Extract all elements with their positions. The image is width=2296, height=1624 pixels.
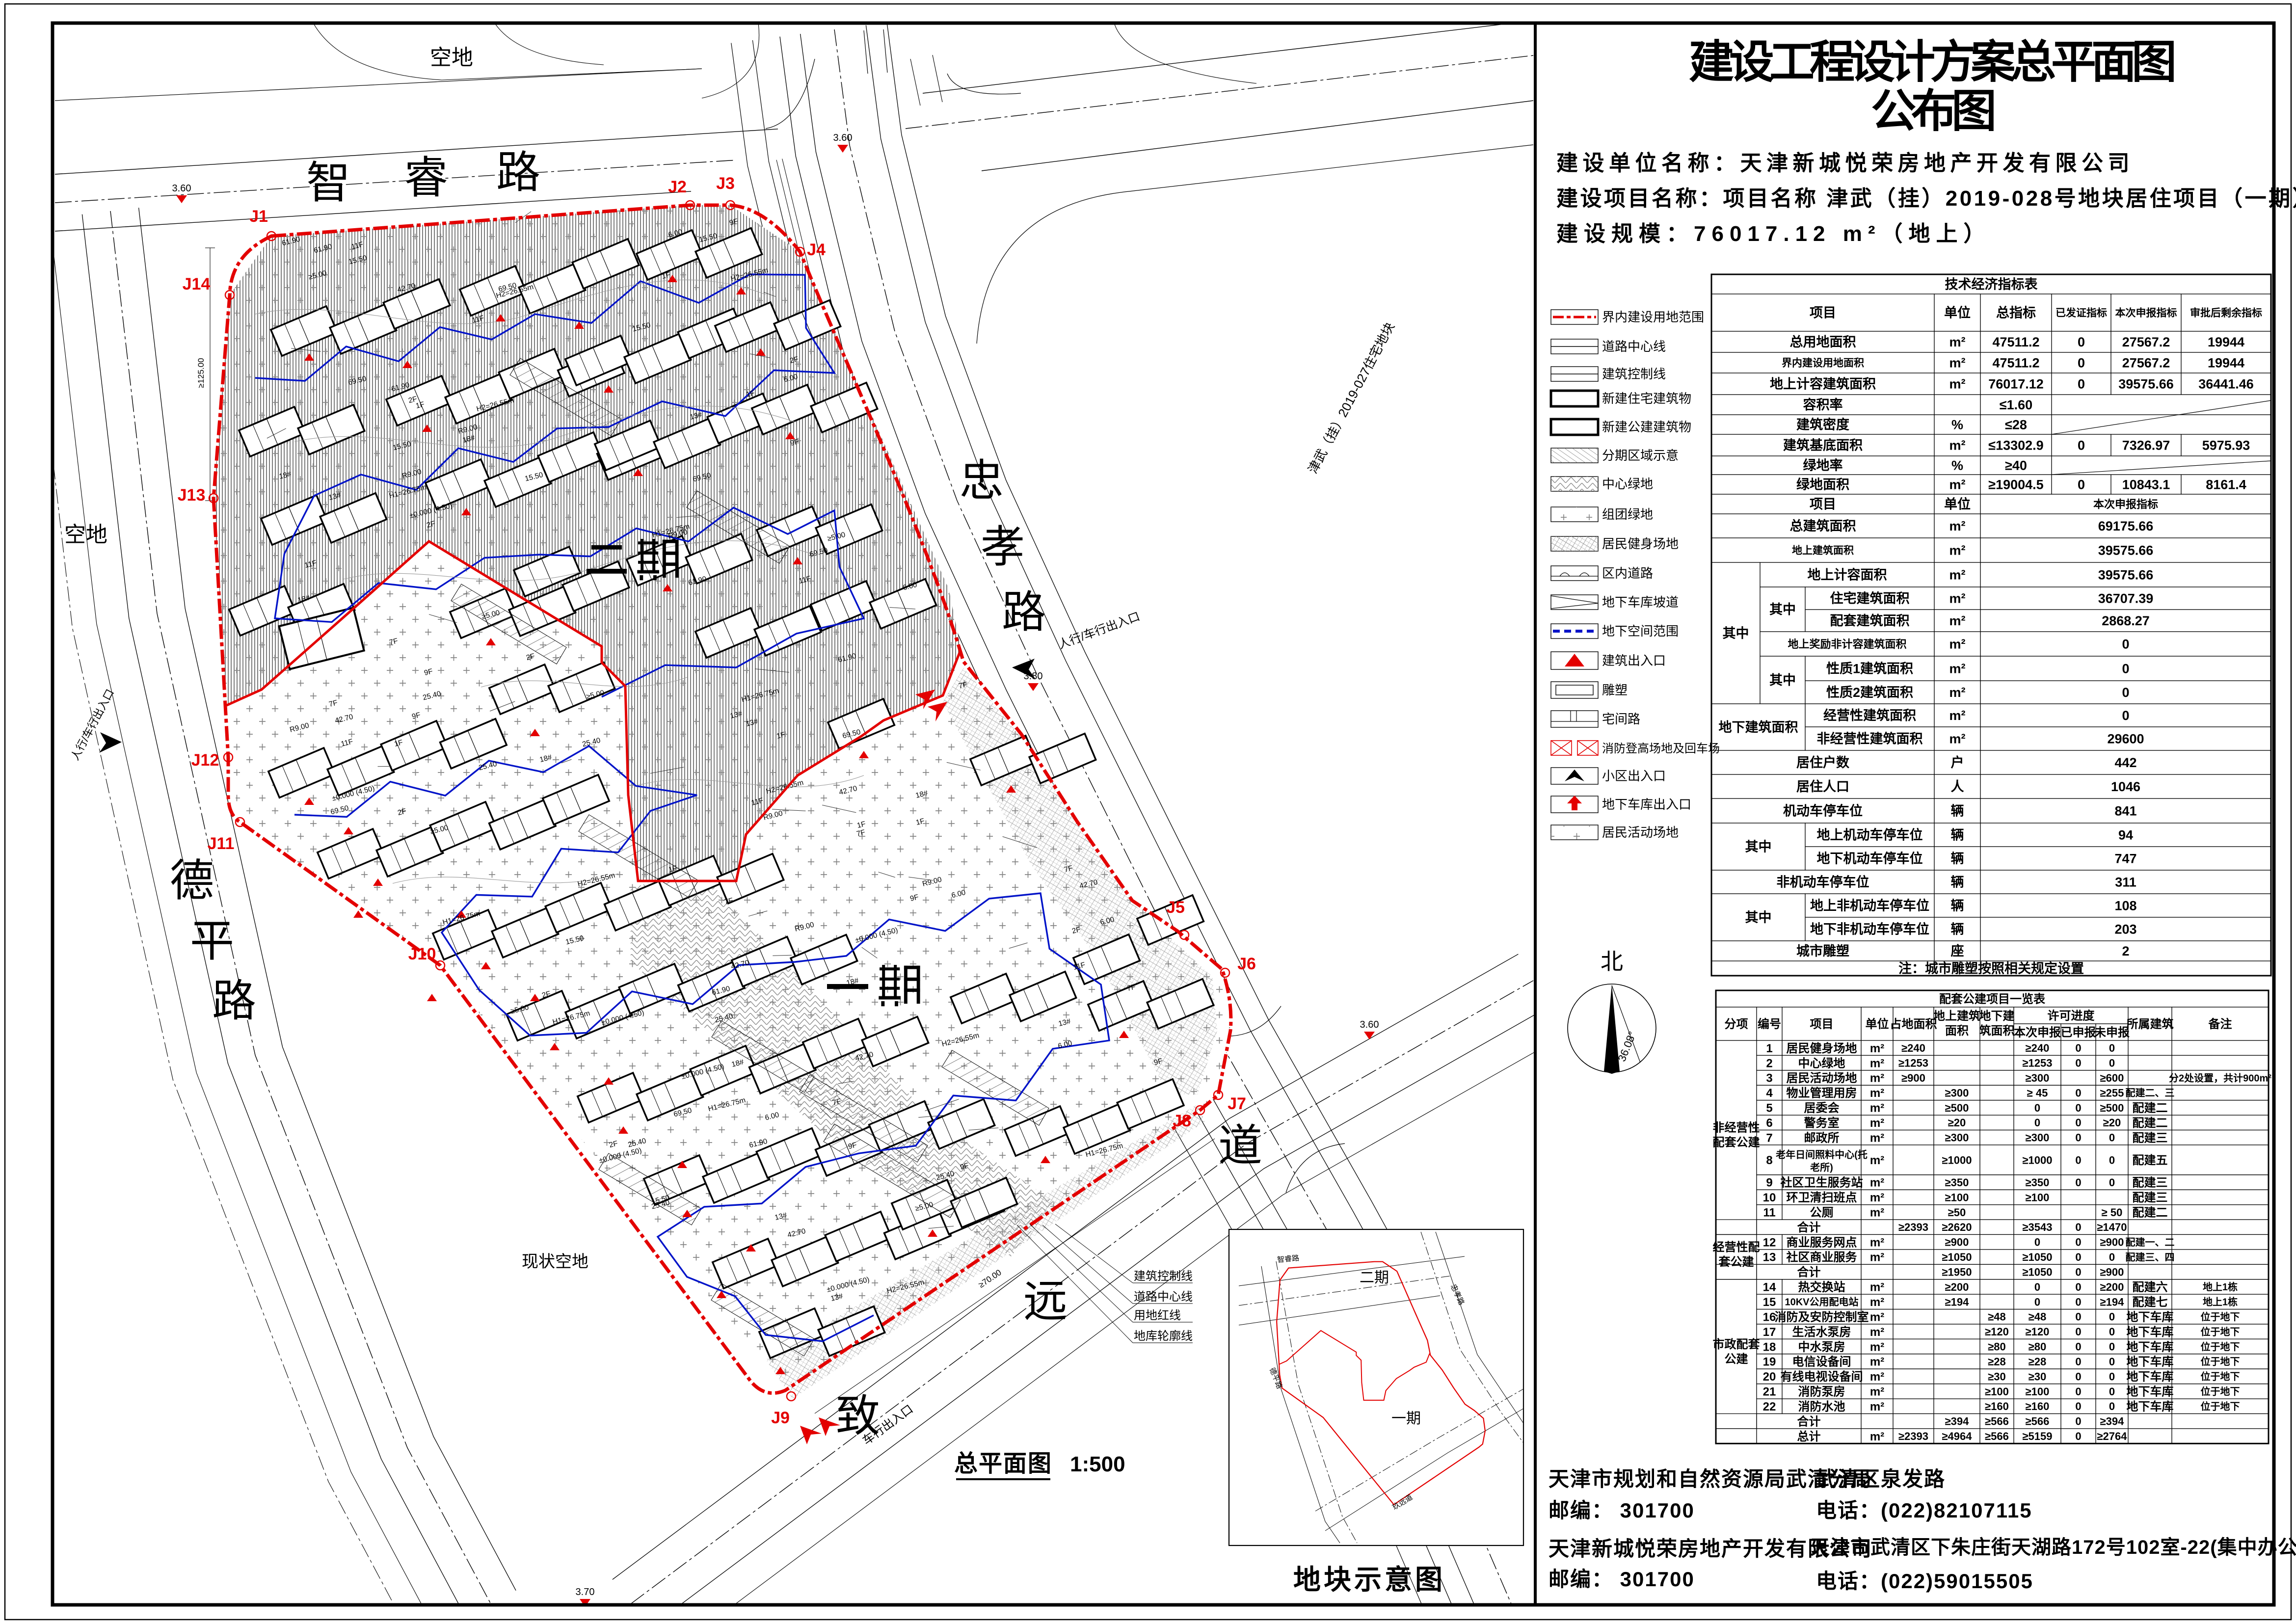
svg-text:地上建筑: 地上建筑: [1933, 1009, 1980, 1023]
svg-text:总指标: 总指标: [1996, 306, 2036, 320]
svg-text:≤28: ≤28: [2005, 418, 2027, 432]
svg-text:≥4964: ≥4964: [1942, 1430, 1972, 1442]
svg-text:≥500: ≥500: [1945, 1102, 1969, 1114]
svg-text:m²: m²: [1870, 1131, 1884, 1145]
svg-text:0: 0: [2109, 1042, 2115, 1054]
svg-text:项目: 项目: [1810, 497, 1836, 512]
svg-text:m²: m²: [1949, 708, 1966, 723]
svg-text:7326.97: 7326.97: [2122, 438, 2170, 453]
svg-text:≥350: ≥350: [2026, 1176, 2050, 1189]
svg-text:≥19004.5: ≥19004.5: [1988, 478, 2043, 492]
svg-text:0: 0: [2078, 335, 2085, 349]
svg-text:地下车库坡道: 地下车库坡道: [1602, 595, 1679, 610]
svg-text:绿地率: 绿地率: [1803, 458, 1843, 473]
svg-text:J1: J1: [249, 207, 268, 226]
svg-text:配建三: 配建三: [2133, 1191, 2168, 1204]
svg-text:0: 0: [2075, 1430, 2081, 1442]
svg-text:m²: m²: [1870, 1042, 1884, 1055]
svg-text:0: 0: [2034, 1117, 2040, 1129]
svg-text:m²: m²: [1949, 356, 1966, 371]
svg-text:39575.66: 39575.66: [2118, 377, 2174, 392]
svg-text:1: 1: [1766, 1042, 1772, 1055]
svg-text:地下建筑面积: 地下建筑面积: [1719, 719, 1798, 735]
svg-text:≥600: ≥600: [2100, 1072, 2124, 1084]
svg-text:配建一、二: 配建一、二: [2126, 1236, 2175, 1248]
svg-text:0: 0: [2075, 1341, 2081, 1353]
svg-text:配套建筑面积: 配套建筑面积: [1830, 613, 1910, 628]
svg-text:22: 22: [1763, 1400, 1776, 1413]
svg-text:地上计容建筑面积: 地上计容建筑面积: [1770, 376, 1876, 392]
svg-text:地下车库: 地下车库: [2127, 1400, 2174, 1413]
svg-text:非经营性: 非经营性: [1713, 1121, 1760, 1135]
svg-text:≥194: ≥194: [2100, 1296, 2125, 1308]
svg-text:总平面图: 总平面图: [954, 1451, 1052, 1477]
svg-text:J11: J11: [208, 834, 235, 853]
svg-text:4: 4: [1766, 1087, 1773, 1100]
svg-text:≥28: ≥28: [2029, 1356, 2047, 1368]
svg-text:占地面积: 占地面积: [1890, 1018, 1937, 1031]
svg-text:m²: m²: [1870, 1385, 1884, 1399]
svg-text:绿地面积: 绿地面积: [1796, 478, 1849, 492]
svg-text:本次申报: 本次申报: [2014, 1026, 2061, 1039]
svg-text:路: 路: [496, 148, 540, 197]
svg-text:德: 德: [170, 856, 214, 905]
svg-text:消防泵房: 消防泵房: [1798, 1385, 1845, 1399]
svg-text:≥5159: ≥5159: [2022, 1430, 2052, 1442]
svg-text:3.60: 3.60: [833, 133, 853, 143]
svg-text:0: 0: [2075, 1117, 2081, 1129]
svg-text:配建三: 配建三: [2133, 1176, 2168, 1190]
svg-text:地上1栋: 地上1栋: [2203, 1296, 2238, 1308]
svg-text:审批后剩余指标: 审批后剩余指标: [2190, 307, 2262, 319]
svg-text:47511.2: 47511.2: [1992, 356, 2039, 371]
svg-text:位于地下: 位于地下: [2201, 1311, 2240, 1323]
svg-text:0: 0: [2109, 1400, 2115, 1412]
svg-text:m²: m²: [1870, 1154, 1884, 1167]
svg-text:≥240: ≥240: [2026, 1042, 2050, 1054]
svg-text:孝: 孝: [981, 523, 1025, 572]
svg-text:合计: 合计: [1797, 1414, 1821, 1428]
svg-text:地下机动车停车位: 地下机动车停车位: [1817, 851, 1923, 866]
svg-text:热交换站: 热交换站: [1798, 1280, 1845, 1294]
svg-text:≥300: ≥300: [2026, 1072, 2050, 1084]
svg-text:≥30: ≥30: [2029, 1370, 2047, 1383]
svg-text:19: 19: [1763, 1356, 1776, 1369]
svg-text:人: 人: [1951, 779, 1964, 794]
svg-text:≥900: ≥900: [2100, 1266, 2124, 1278]
svg-text:0: 0: [2078, 356, 2085, 371]
svg-text:3.70: 3.70: [576, 1587, 595, 1597]
svg-text:m²: m²: [1870, 1072, 1884, 1085]
svg-text:m²: m²: [1870, 1310, 1884, 1324]
svg-text:≥48: ≥48: [1988, 1311, 2006, 1323]
svg-text:用地红线: 用地红线: [1134, 1309, 1181, 1322]
svg-text:套公建: 套公建: [1719, 1255, 1754, 1269]
svg-text:单位: 单位: [1944, 305, 1971, 320]
svg-text:m²: m²: [1949, 637, 1966, 652]
svg-text:0: 0: [2109, 1341, 2115, 1353]
svg-text:m²: m²: [1870, 1236, 1884, 1249]
svg-text:组团绿地: 组团绿地: [1602, 507, 1653, 522]
svg-text:≥394: ≥394: [2100, 1415, 2125, 1428]
svg-text:m²: m²: [1949, 478, 1966, 492]
svg-text:≥255: ≥255: [2100, 1087, 2124, 1099]
svg-text:108: 108: [2114, 899, 2136, 913]
svg-text:空地: 空地: [430, 46, 473, 70]
svg-text:20: 20: [1763, 1370, 1776, 1384]
svg-text:≥200: ≥200: [1945, 1281, 1969, 1293]
svg-text:建筑出入口: 建筑出入口: [1602, 653, 1666, 668]
svg-text:非经营性建筑面积: 非经营性建筑面积: [1817, 731, 1923, 746]
svg-text:本次申报指标: 本次申报指标: [2115, 307, 2177, 319]
svg-text:5975.93: 5975.93: [2202, 438, 2250, 453]
svg-text:m²: m²: [1870, 1057, 1884, 1070]
svg-text:0: 0: [2109, 1251, 2115, 1263]
svg-text:m²: m²: [1949, 685, 1966, 700]
svg-text:总用地面积: 总用地面积: [1790, 335, 1856, 349]
svg-text:0: 0: [2034, 1296, 2040, 1308]
svg-text:≥40: ≥40: [2005, 458, 2027, 473]
svg-text:0: 0: [2034, 1102, 2040, 1114]
svg-text:地下车库: 地下车库: [2127, 1355, 2174, 1369]
svg-text:地下空间范围: 地下空间范围: [1602, 624, 1679, 639]
svg-text:建筑控制线: 建筑控制线: [1602, 367, 1666, 381]
svg-text:睿: 睿: [404, 154, 448, 203]
svg-text:J14: J14: [183, 275, 211, 293]
svg-text:居民健身场地: 居民健身场地: [1602, 536, 1679, 551]
svg-text:居民活动场地: 居民活动场地: [1602, 825, 1679, 840]
svg-text:其中: 其中: [1723, 626, 1749, 641]
svg-text:2: 2: [2122, 944, 2129, 958]
svg-text:远: 远: [1023, 1277, 1068, 1326]
svg-text:建筑基底面积: 建筑基底面积: [1783, 438, 1863, 453]
svg-text:m²: m²: [1949, 543, 1966, 558]
svg-text:老年日间照料中心(托: 老年日间照料中心(托: [1776, 1148, 1868, 1160]
svg-text:J10: J10: [408, 945, 436, 963]
svg-text:居住人口: 居住人口: [1796, 779, 1849, 794]
svg-text:0: 0: [2075, 1281, 2081, 1293]
svg-text:≥350: ≥350: [1945, 1176, 1969, 1189]
svg-text:地下车库: 地下车库: [2127, 1385, 2174, 1399]
svg-text:消防水池: 消防水池: [1798, 1400, 1845, 1413]
svg-text:≥160: ≥160: [1985, 1400, 2009, 1412]
svg-text:机动车停车位: 机动车停车位: [1783, 803, 1863, 819]
svg-text:442: 442: [2114, 755, 2136, 770]
svg-text:≥2620: ≥2620: [1942, 1221, 1972, 1233]
svg-text:m²: m²: [1870, 1370, 1884, 1384]
svg-text:0: 0: [2075, 1356, 2081, 1368]
svg-text:≥300: ≥300: [2026, 1132, 2050, 1144]
svg-text:18: 18: [1763, 1340, 1776, 1354]
svg-text:配套公建: 配套公建: [1713, 1136, 1760, 1149]
svg-text:有线电视设备间: 有线电视设备间: [1781, 1370, 1863, 1384]
svg-text:市政配套: 市政配套: [1713, 1337, 1761, 1351]
svg-text:0: 0: [2109, 1385, 2115, 1398]
svg-text:邮政所: 邮政所: [1804, 1131, 1840, 1145]
svg-text:本次申报指标: 本次申报指标: [2093, 498, 2158, 510]
svg-text:10KV公用配电站: 10KV公用配电站: [1785, 1296, 1858, 1308]
svg-text:0: 0: [2109, 1370, 2115, 1383]
svg-text:区内道路: 区内道路: [1602, 566, 1653, 581]
svg-text:3.60: 3.60: [1360, 1019, 1379, 1030]
svg-text:电话：(022)82107115: 电话：(022)82107115: [1816, 1499, 2032, 1522]
svg-text:小区出入口: 小区出入口: [1602, 769, 1666, 783]
svg-text:≥1950: ≥1950: [1942, 1266, 1972, 1278]
svg-text:m²: m²: [1870, 1206, 1884, 1219]
svg-text:0: 0: [2075, 1296, 2081, 1308]
svg-text:地上计容面积: 地上计容面积: [1808, 567, 1887, 583]
svg-text:≥100: ≥100: [2026, 1385, 2050, 1398]
svg-text:单位: 单位: [1944, 497, 1971, 512]
svg-text:天津市武清区下朱庄街天湖路172号102室-22(集中办公区: 天津市武清区下朱庄街天湖路172号102室-22(集中办公区): [1810, 1537, 2296, 1558]
svg-text:建设单位名称：天津新城悦荣房地产开发有限公司: 建设单位名称：天津新城悦荣房地产开发有限公司: [1556, 151, 2134, 175]
svg-text:地下车库出入口: 地下车库出入口: [1602, 797, 1691, 812]
svg-text:0: 0: [2075, 1251, 2081, 1263]
svg-text:≥48: ≥48: [2029, 1311, 2047, 1323]
svg-text:≥125.00: ≥125.00: [196, 358, 206, 388]
svg-text:居住户数: 居住户数: [1796, 755, 1850, 770]
svg-text:m²: m²: [1949, 662, 1966, 676]
svg-text:地上奖励非计容建筑面积: 地上奖励非计容建筑面积: [1788, 638, 1906, 650]
svg-text:0: 0: [2122, 662, 2129, 676]
svg-text:邮编： 301700: 邮编： 301700: [1548, 1568, 1695, 1591]
svg-text:m²: m²: [1949, 438, 1966, 453]
svg-text:0: 0: [2109, 1176, 2115, 1189]
svg-text:0: 0: [2075, 1311, 2081, 1323]
svg-text:J5: J5: [1166, 898, 1185, 917]
svg-text:配建二: 配建二: [2133, 1117, 2168, 1130]
svg-text:m²: m²: [1870, 1176, 1884, 1190]
svg-text:经营性建筑面积: 经营性建筑面积: [1823, 708, 1916, 723]
svg-text:路: 路: [212, 977, 256, 1026]
svg-text:住宅建筑面积: 住宅建筑面积: [1830, 591, 1910, 606]
svg-text:辆: 辆: [1951, 852, 1964, 866]
svg-text:8: 8: [1766, 1154, 1772, 1167]
svg-text:建设规模：76017.12 m²（地上）: 建设规模：76017.12 m²（地上）: [1556, 222, 1991, 246]
svg-text:面积: 面积: [1945, 1024, 1969, 1038]
svg-text:0: 0: [2075, 1087, 2081, 1099]
svg-text:公厕: 公厕: [1810, 1206, 1834, 1219]
svg-text:现状空地: 现状空地: [522, 1252, 588, 1271]
svg-text:9: 9: [1766, 1176, 1772, 1190]
svg-text:界内建设用地面积: 界内建设用地面积: [1782, 357, 1864, 369]
svg-text:5: 5: [1766, 1102, 1772, 1115]
svg-text:0: 0: [2109, 1311, 2115, 1323]
svg-text:39575.66: 39575.66: [2098, 543, 2154, 558]
svg-text:≥2393: ≥2393: [1898, 1221, 1928, 1233]
svg-text:0: 0: [2075, 1102, 2081, 1114]
svg-text:环卫清扫班点: 环卫清扫班点: [1787, 1191, 1857, 1204]
svg-text:≥1253: ≥1253: [1898, 1057, 1928, 1069]
svg-text:座: 座: [1951, 943, 1964, 958]
svg-text:0: 0: [2034, 1281, 2040, 1293]
svg-text:技术经济指标表: 技术经济指标表: [1945, 277, 2038, 292]
svg-text:建筑密度: 建筑密度: [1796, 417, 1849, 432]
svg-text:位于地下: 位于地下: [2201, 1400, 2240, 1412]
svg-text:J2: J2: [668, 178, 687, 196]
svg-text:17: 17: [1763, 1326, 1776, 1339]
svg-text:7: 7: [1766, 1131, 1772, 1145]
svg-text:配建二: 配建二: [2133, 1206, 2168, 1219]
svg-text:≥900: ≥900: [2100, 1236, 2124, 1249]
svg-text:消防及安防控制室: 消防及安防控制室: [1775, 1310, 1869, 1324]
svg-text:配建五: 配建五: [2133, 1154, 2168, 1167]
svg-text:总计: 总计: [1797, 1430, 1821, 1443]
svg-text:m²: m²: [1949, 591, 1966, 606]
svg-text:≥2764: ≥2764: [2097, 1430, 2127, 1442]
svg-text:已发证指标: 已发证指标: [2056, 307, 2107, 319]
svg-text:0: 0: [2078, 377, 2085, 392]
svg-text:路: 路: [1002, 588, 1046, 637]
svg-text:合计: 合计: [1797, 1265, 1821, 1279]
svg-text:m²: m²: [1949, 335, 1966, 349]
svg-text:J8: J8: [1173, 1112, 1191, 1130]
svg-text:m²: m²: [1870, 1296, 1884, 1309]
svg-text:公建: 公建: [1725, 1353, 1748, 1366]
svg-text:分项: 分项: [1725, 1018, 1748, 1031]
svg-text:21: 21: [1763, 1385, 1776, 1399]
svg-text:≥ 45: ≥ 45: [2027, 1087, 2048, 1099]
svg-text:47511.2: 47511.2: [1992, 335, 2039, 349]
svg-text:≥1253: ≥1253: [2022, 1057, 2052, 1069]
svg-text:生活水泵房: 生活水泵房: [1792, 1325, 1851, 1339]
svg-text:地上建筑面积: 地上建筑面积: [1792, 545, 1854, 557]
svg-text:27567.2: 27567.2: [2122, 335, 2170, 349]
svg-text:≥28: ≥28: [1988, 1356, 2006, 1368]
svg-text:其中: 其中: [1769, 602, 1796, 617]
svg-text:8161.4: 8161.4: [2206, 478, 2246, 492]
svg-text:地块示意图: 地块示意图: [1293, 1564, 1445, 1595]
svg-text:配建二、三: 配建二、三: [2126, 1087, 2175, 1099]
svg-text:m²: m²: [1949, 568, 1966, 583]
svg-text:0: 0: [2122, 708, 2129, 723]
svg-text:29600: 29600: [2107, 732, 2144, 746]
svg-text:电信设备间: 电信设备间: [1792, 1355, 1851, 1369]
svg-text:辆: 辆: [1951, 922, 1964, 937]
svg-text:筑面积: 筑面积: [1979, 1024, 2015, 1038]
svg-text:性质1建筑面积: 性质1建筑面积: [1826, 661, 1913, 676]
svg-text:城市雕塑: 城市雕塑: [1796, 943, 1849, 958]
svg-text:建筑控制线: 建筑控制线: [1134, 1270, 1193, 1283]
svg-text:≥80: ≥80: [1988, 1341, 2006, 1353]
svg-text:≥2393: ≥2393: [1898, 1430, 1928, 1442]
svg-text:15: 15: [1763, 1296, 1776, 1309]
svg-text:分2处设置，共计900m²: 分2处设置，共计900m²: [2169, 1072, 2271, 1084]
svg-text:0: 0: [2075, 1385, 2081, 1398]
svg-text:≥200: ≥200: [2100, 1281, 2124, 1293]
svg-text:道路中心线: 道路中心线: [1602, 339, 1666, 354]
svg-text:配建三、四: 配建三、四: [2126, 1251, 2175, 1263]
svg-text:≥160: ≥160: [2026, 1400, 2050, 1412]
svg-text:≥20: ≥20: [1948, 1117, 1966, 1129]
svg-text:地下车库: 地下车库: [2127, 1310, 2174, 1324]
svg-text:空地: 空地: [64, 523, 107, 547]
svg-text:智: 智: [306, 159, 350, 208]
svg-text:位于地下: 位于地下: [2201, 1371, 2240, 1383]
svg-text:社区商业服务: 社区商业服务: [1787, 1251, 1858, 1264]
svg-text:≥50: ≥50: [1948, 1206, 1966, 1219]
svg-text:6: 6: [1766, 1117, 1772, 1130]
svg-text:配建七: 配建七: [2133, 1296, 2168, 1309]
svg-text:中水泵房: 中水泵房: [1798, 1340, 1845, 1354]
svg-text:J3: J3: [716, 174, 735, 193]
svg-text:m²: m²: [1870, 1430, 1884, 1443]
svg-text:≥30: ≥30: [1988, 1370, 2006, 1383]
svg-text:居委会: 居委会: [1804, 1101, 1840, 1115]
svg-text:2868.27: 2868.27: [2102, 613, 2150, 628]
svg-text:36707.39: 36707.39: [2098, 591, 2154, 606]
svg-text:≥80: ≥80: [2029, 1341, 2047, 1353]
svg-text:所属建筑: 所属建筑: [2127, 1017, 2174, 1031]
svg-text:0: 0: [2075, 1176, 2081, 1189]
svg-text:0: 0: [2078, 438, 2085, 453]
svg-text:76017.12: 76017.12: [1988, 377, 2044, 392]
svg-text:警务室: 警务室: [1804, 1116, 1840, 1130]
svg-text:3: 3: [1766, 1072, 1772, 1085]
svg-text:二期: 二期: [1360, 1270, 1389, 1286]
svg-text:0: 0: [2075, 1057, 2081, 1069]
svg-text:≥394: ≥394: [1945, 1415, 1970, 1428]
svg-text:≥100: ≥100: [1985, 1385, 2009, 1398]
svg-text:新建公建建筑物: 新建公建建筑物: [1602, 420, 1691, 434]
svg-text:0: 0: [2109, 1326, 2115, 1338]
svg-text:≥566: ≥566: [2026, 1415, 2050, 1428]
svg-text:≥300: ≥300: [1945, 1132, 1969, 1144]
svg-text:地库轮廓线: 地库轮廓线: [1134, 1330, 1193, 1343]
svg-text:0: 0: [2075, 1370, 2081, 1383]
svg-text:位于地下: 位于地下: [2201, 1385, 2240, 1397]
svg-text:0: 0: [2122, 637, 2129, 652]
svg-text:≤1.60: ≤1.60: [2000, 398, 2032, 412]
svg-text:m²: m²: [1870, 1191, 1884, 1204]
svg-text:物业管理用房: 物业管理用房: [1787, 1086, 1857, 1100]
svg-text:配建二: 配建二: [2133, 1102, 2168, 1115]
svg-text:10: 10: [1763, 1191, 1776, 1204]
svg-text:≥566: ≥566: [1985, 1430, 2009, 1442]
svg-text:0: 0: [2122, 685, 2129, 700]
svg-text:未申报: 未申报: [2094, 1026, 2130, 1039]
svg-text:13: 13: [1763, 1251, 1776, 1264]
svg-text:居民活动场地: 居民活动场地: [1787, 1072, 1857, 1085]
svg-text:≥1000: ≥1000: [1942, 1154, 1972, 1166]
svg-text:0: 0: [2075, 1236, 2081, 1249]
svg-text:≥900: ≥900: [1945, 1236, 1969, 1249]
svg-text:m²: m²: [1949, 377, 1966, 392]
svg-text:m²: m²: [1870, 1356, 1884, 1369]
svg-text:0: 0: [2078, 478, 2085, 492]
svg-text:0: 0: [2109, 1132, 2115, 1144]
svg-text:≥1000: ≥1000: [2022, 1154, 2052, 1166]
svg-text:36441.46: 36441.46: [2198, 377, 2254, 392]
svg-text:0: 0: [2109, 1154, 2115, 1166]
svg-text:m²: m²: [1870, 1340, 1884, 1354]
svg-text:0: 0: [2075, 1132, 2081, 1144]
svg-text:位于地下: 位于地下: [2201, 1341, 2240, 1353]
svg-text:电话：(022)59015505: 电话：(022)59015505: [1816, 1570, 2033, 1593]
svg-text:道: 道: [1218, 1121, 1262, 1171]
svg-text:中心绿地: 中心绿地: [1602, 477, 1653, 491]
svg-text:1046: 1046: [2111, 779, 2140, 794]
svg-text:界内建设用地范围: 界内建设用地范围: [1602, 310, 1704, 324]
svg-text:J6: J6: [1237, 955, 1256, 973]
svg-text:地下车库: 地下车库: [2127, 1370, 2174, 1384]
svg-text:19944: 19944: [2208, 335, 2244, 349]
svg-text:0: 0: [2075, 1266, 2081, 1278]
svg-text:841: 841: [2114, 804, 2136, 819]
svg-text:m²: m²: [1870, 1117, 1884, 1130]
svg-text:0: 0: [2075, 1221, 2081, 1233]
svg-text:m²: m²: [1870, 1102, 1884, 1115]
